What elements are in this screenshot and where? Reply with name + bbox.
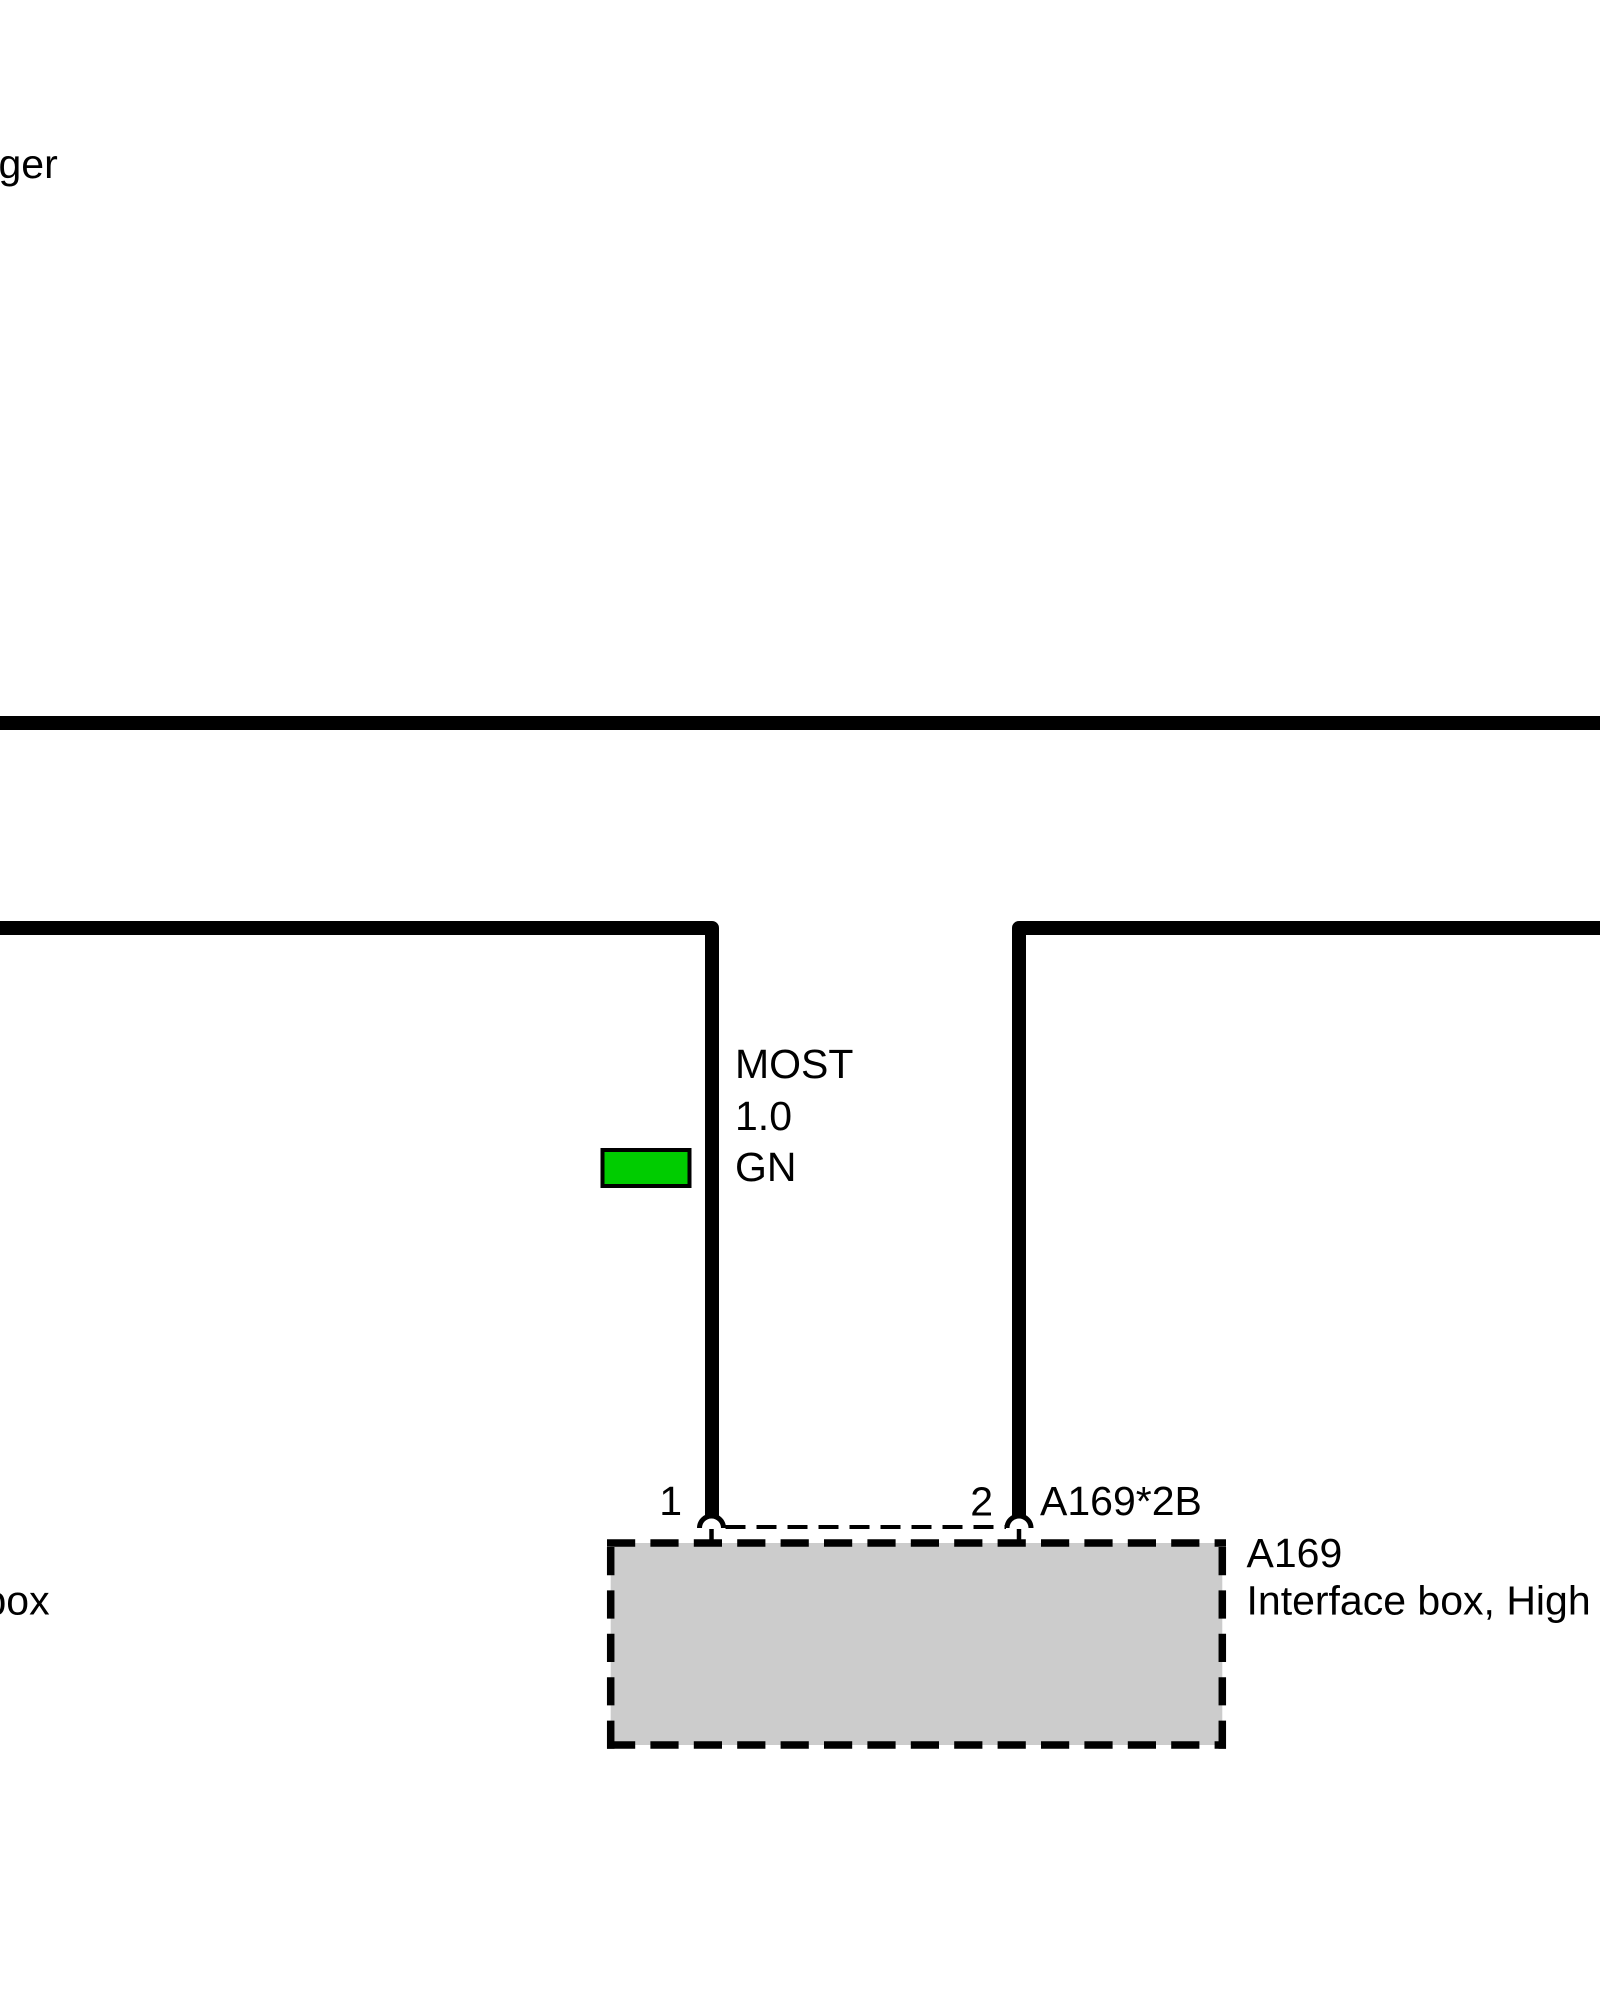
svg-text:1: 1 (659, 1478, 682, 1524)
svg-text:MOST: MOST (735, 1041, 853, 1087)
svg-text:A169*2B: A169*2B (1040, 1478, 1202, 1524)
svg-text:ger: ger (0, 141, 58, 187)
svg-text:2: 2 (970, 1479, 993, 1525)
svg-text:A169: A169 (1247, 1530, 1343, 1576)
svg-text:Interface box, High: Interface box, High (1247, 1578, 1591, 1624)
svg-text:1.0: 1.0 (735, 1093, 792, 1139)
svg-text:box: box (0, 1578, 50, 1624)
svg-text:GN: GN (735, 1144, 797, 1190)
